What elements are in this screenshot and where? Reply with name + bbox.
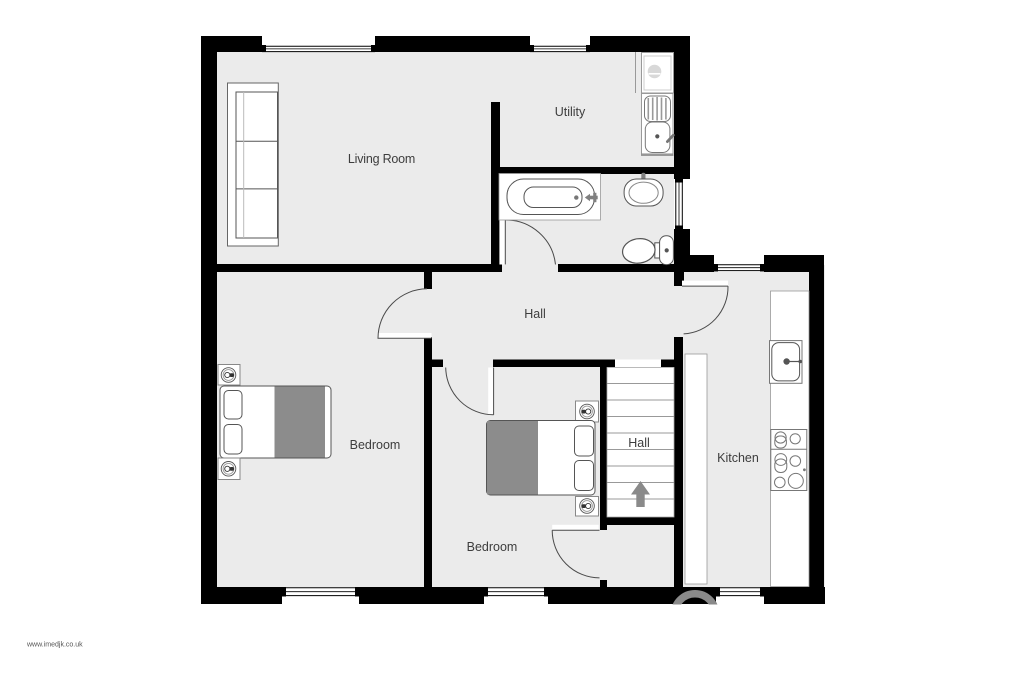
svg-text:Kitchen: Kitchen: [717, 451, 759, 465]
svg-text:Living Room: Living Room: [348, 152, 415, 166]
svg-text:Bedroom: Bedroom: [350, 438, 401, 452]
svg-text:www.imedjk.co.uk: www.imedjk.co.uk: [26, 642, 83, 649]
svg-text:Bedroom: Bedroom: [467, 540, 518, 554]
svg-text:Hall: Hall: [628, 436, 650, 450]
svg-text:Hall: Hall: [524, 307, 546, 321]
svg-text:Utility: Utility: [555, 105, 586, 119]
